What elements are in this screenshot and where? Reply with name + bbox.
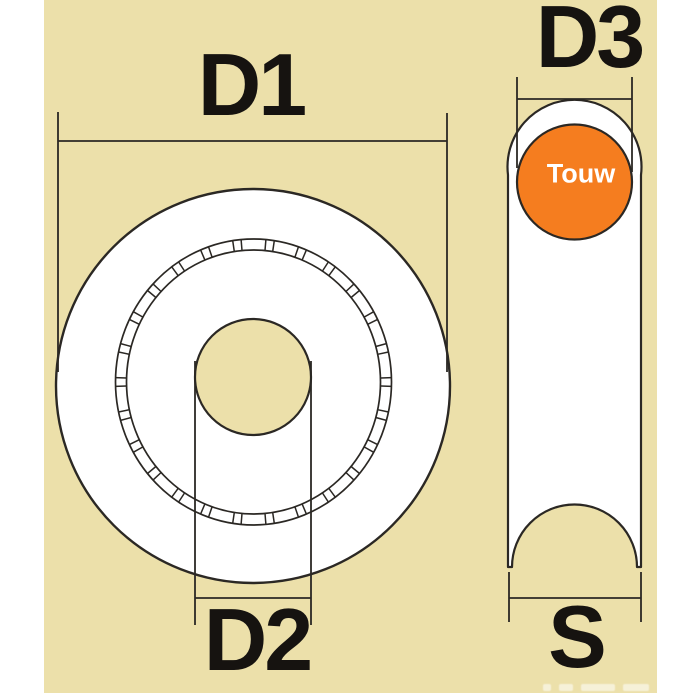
- rope-label: Touw: [547, 161, 615, 188]
- diagram-page: D1 D2 D3 S Touw: [0, 0, 700, 700]
- dim-label-d1: D1: [198, 41, 305, 129]
- dim-label-d2: D2: [204, 596, 311, 684]
- dim-label-d3: D3: [536, 0, 643, 81]
- center-bore-circle: [195, 319, 311, 435]
- dim-label-s: S: [548, 593, 604, 681]
- watermark-smudge: [543, 682, 657, 692]
- front-view: [56, 189, 450, 583]
